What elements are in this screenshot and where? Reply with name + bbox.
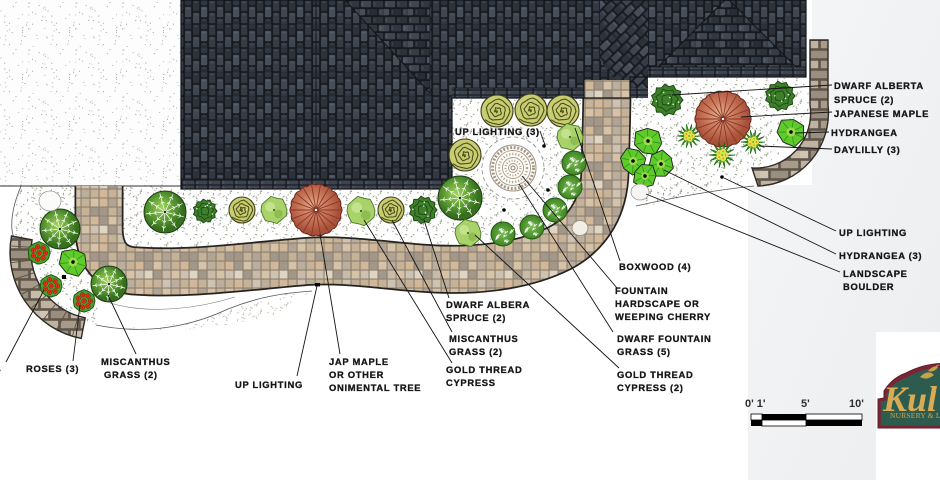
svg-text:CYPRESS: CYPRESS (446, 377, 496, 388)
svg-text:GOLD THREAD: GOLD THREAD (617, 369, 693, 380)
svg-text:DWARF FOUNTAIN: DWARF FOUNTAIN (617, 333, 712, 344)
svg-text:ONIMENTAL TREE: ONIMENTAL TREE (329, 382, 421, 393)
svg-text:BOXWOOD (4): BOXWOOD (4) (619, 261, 691, 272)
svg-text:SPRUCE (2): SPRUCE (2) (834, 94, 894, 105)
svg-text:DWARF ALBERTA: DWARF ALBERTA (834, 80, 924, 91)
svg-text:ROSES (3): ROSES (3) (26, 363, 79, 374)
svg-text:UP LIGHTING: UP LIGHTING (235, 379, 303, 390)
svg-text:LANDSCAPE: LANDSCAPE (843, 268, 908, 279)
svg-text:HYDRANGEA: HYDRANGEA (831, 127, 898, 138)
svg-text:FOUNTAIN: FOUNTAIN (615, 285, 668, 296)
svg-text:10': 10' (849, 398, 864, 410)
svg-text:DWARF ALBERA: DWARF ALBERA (446, 299, 530, 310)
svg-text:MISCANTHUS: MISCANTHUS (449, 333, 519, 344)
svg-text:HARDSCAPE OR: HARDSCAPE OR (615, 298, 699, 309)
svg-text:GRASS (2): GRASS (2) (449, 346, 503, 357)
svg-text:A: A (0, 362, 1, 373)
svg-text:0' 1': 0' 1' (745, 398, 766, 410)
svg-text:HYDRANGEA (3): HYDRANGEA (3) (839, 250, 922, 261)
svg-text:GOLD THREAD: GOLD THREAD (446, 364, 522, 375)
svg-text:BOULDER: BOULDER (843, 281, 894, 292)
svg-text:NURSERY & L: NURSERY & L (890, 411, 940, 420)
svg-text:SPRUCE (2): SPRUCE (2) (446, 312, 506, 323)
svg-text:OR OTHER: OR OTHER (329, 369, 384, 380)
svg-text:JAPANESE MAPLE: JAPANESE MAPLE (834, 108, 929, 119)
svg-text:UP LIGHTING (3): UP LIGHTING (3) (455, 126, 540, 137)
svg-text:GRASS (5): GRASS (5) (617, 346, 671, 357)
svg-text:GRASS (2): GRASS (2) (104, 369, 158, 380)
svg-text:5': 5' (801, 398, 810, 410)
svg-text:JAP MAPLE: JAP MAPLE (329, 356, 389, 367)
svg-text:WEEPING CHERRY: WEEPING CHERRY (615, 311, 711, 322)
svg-text:DAYLILLY (3): DAYLILLY (3) (834, 144, 900, 155)
svg-text:MISCANTHUS: MISCANTHUS (101, 356, 171, 367)
svg-text:UP LIGHTING: UP LIGHTING (839, 227, 907, 238)
svg-text:CYPRESS (2): CYPRESS (2) (617, 382, 684, 393)
